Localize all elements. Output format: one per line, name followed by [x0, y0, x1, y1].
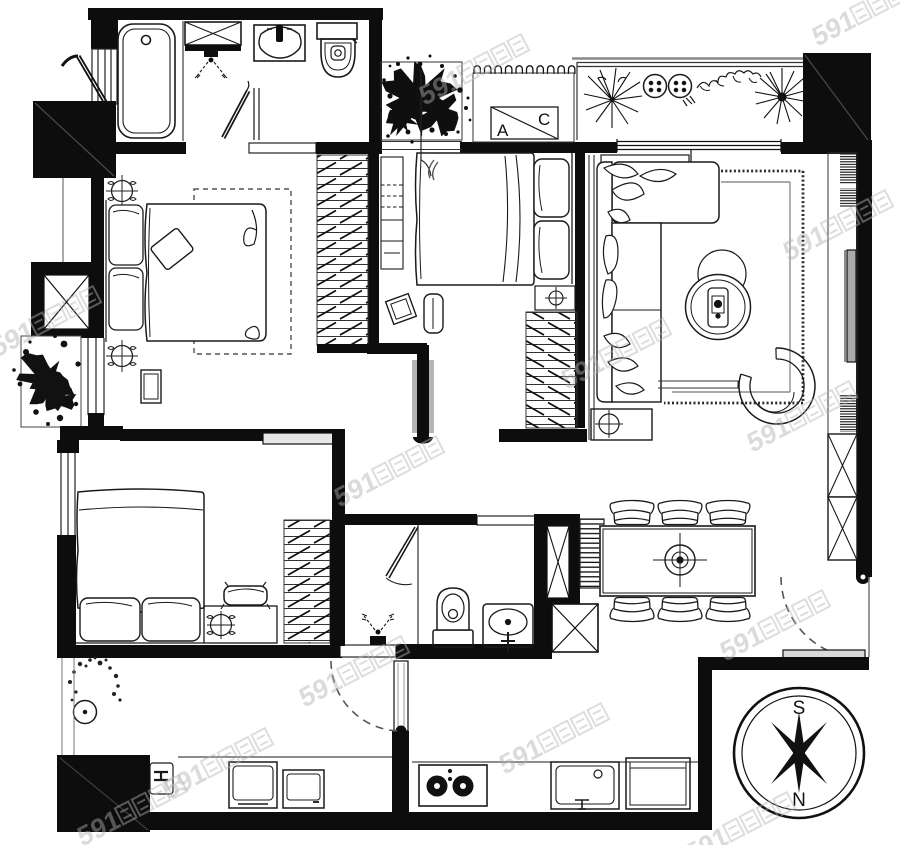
svg-text:A: A [497, 121, 509, 140]
svg-text:C: C [538, 110, 550, 129]
